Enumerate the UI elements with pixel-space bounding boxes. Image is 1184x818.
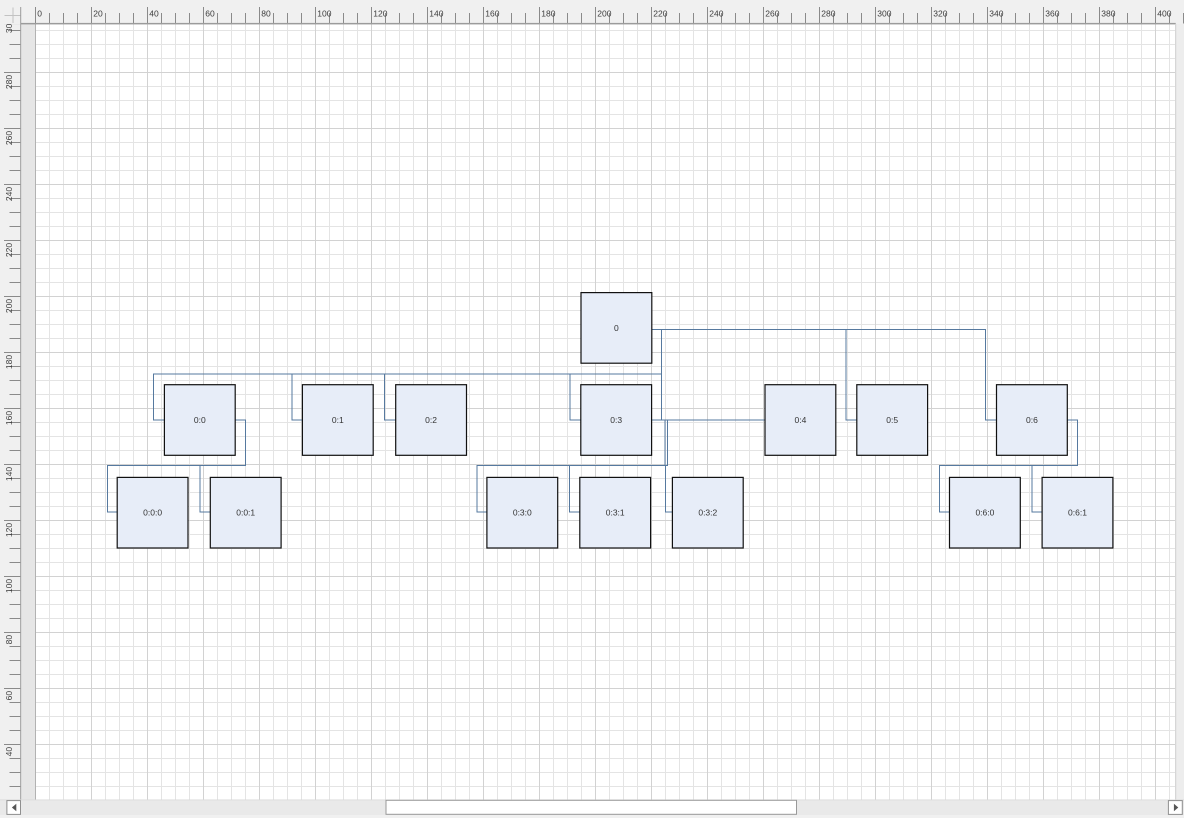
svg-text:40: 40	[149, 9, 159, 19]
svg-text:260: 260	[4, 131, 14, 145]
svg-text:0: 0	[614, 323, 619, 333]
svg-text:120: 120	[373, 9, 387, 19]
svg-text:0:6:0: 0:6:0	[975, 508, 994, 518]
svg-text:380: 380	[1101, 9, 1115, 19]
svg-text:340: 340	[989, 9, 1003, 19]
svg-text:20: 20	[93, 9, 103, 19]
svg-text:0:6:1: 0:6:1	[1068, 508, 1087, 518]
svg-text:0:6: 0:6	[1026, 415, 1038, 425]
svg-text:280: 280	[4, 75, 14, 89]
svg-text:60: 60	[4, 691, 14, 701]
svg-text:280: 280	[821, 9, 835, 19]
svg-text:0:4: 0:4	[794, 415, 806, 425]
svg-text:260: 260	[765, 9, 779, 19]
svg-text:140: 140	[429, 9, 443, 19]
svg-text:0:5: 0:5	[886, 415, 898, 425]
svg-text:140: 140	[4, 467, 14, 481]
svg-text:240: 240	[709, 9, 723, 19]
svg-text:0:0:0: 0:0:0	[143, 508, 162, 518]
svg-text:100: 100	[317, 9, 331, 19]
svg-text:0:3:1: 0:3:1	[606, 508, 625, 518]
svg-text:160: 160	[4, 411, 14, 425]
svg-text:80: 80	[4, 635, 14, 645]
svg-text:320: 320	[933, 9, 947, 19]
svg-text:400: 400	[1157, 9, 1171, 19]
svg-text:0:3:0: 0:3:0	[513, 508, 532, 518]
svg-text:0:3: 0:3	[610, 415, 622, 425]
svg-text:100: 100	[4, 579, 14, 593]
svg-text:0: 0	[37, 9, 42, 19]
svg-text:220: 220	[4, 243, 14, 257]
svg-text:180: 180	[541, 9, 555, 19]
svg-text:80: 80	[261, 9, 271, 19]
svg-text:200: 200	[597, 9, 611, 19]
svg-text:160: 160	[485, 9, 499, 19]
svg-text:180: 180	[4, 355, 14, 369]
svg-text:300: 300	[877, 9, 891, 19]
svg-text:0:0:1: 0:0:1	[236, 508, 255, 518]
svg-text:0:3:2: 0:3:2	[698, 508, 717, 518]
svg-text:0:1: 0:1	[332, 415, 344, 425]
svg-text:0:0: 0:0	[194, 415, 206, 425]
svg-text:220: 220	[653, 9, 667, 19]
svg-text:0:2: 0:2	[425, 415, 437, 425]
svg-text:240: 240	[4, 187, 14, 201]
svg-text:360: 360	[1045, 9, 1059, 19]
svg-text:60: 60	[205, 9, 215, 19]
svg-text:120: 120	[4, 523, 14, 537]
svg-text:200: 200	[4, 299, 14, 313]
svg-text:40: 40	[4, 747, 14, 757]
